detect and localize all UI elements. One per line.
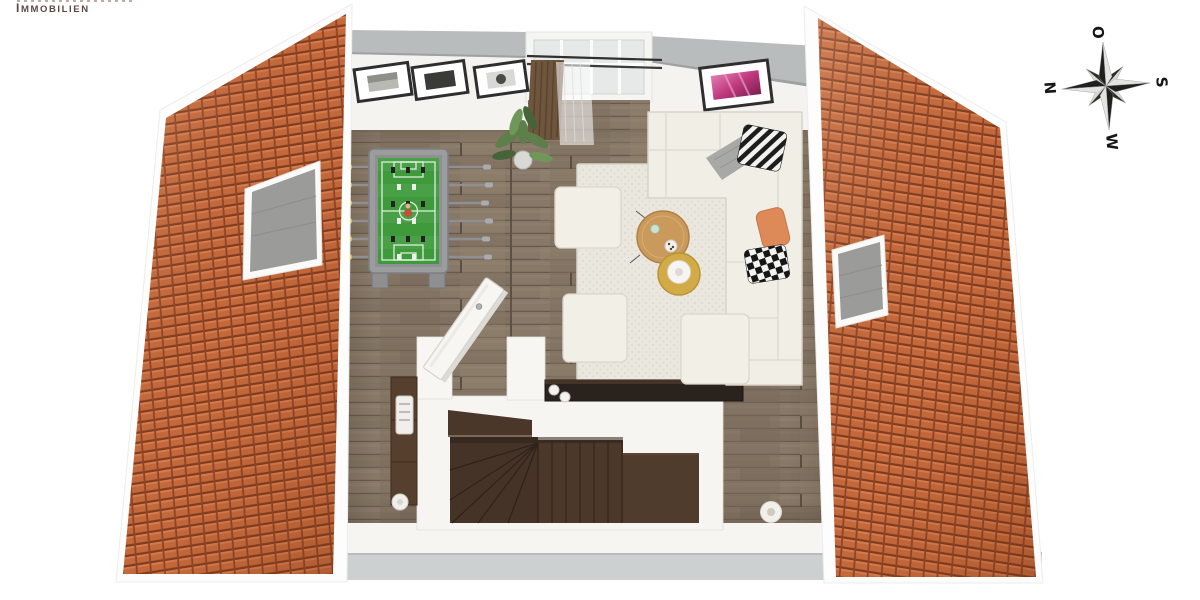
cropped-logo-line: [17, 0, 135, 2]
ottoman-3: [681, 314, 749, 384]
compass-label-west: W: [1102, 133, 1121, 151]
decor-vase: [396, 396, 413, 434]
left-roof: [116, 4, 352, 582]
compass-rose: N O S W: [1037, 21, 1175, 155]
picture-frame-3: [474, 61, 528, 98]
cup: [549, 385, 559, 395]
stair-shadow: [450, 437, 623, 443]
bw-pattern-pillow: [736, 124, 787, 172]
compass-star: [1059, 39, 1153, 133]
pink-picture-frame: [700, 60, 773, 110]
decor-plate-center: [397, 499, 403, 505]
brand-logo: IMMOBILIEN: [16, 0, 135, 15]
cup: [560, 392, 570, 402]
winder-steps: [450, 437, 538, 523]
picture-frame-1: [354, 62, 412, 101]
checkered-pillow: [744, 244, 791, 284]
right-roof: [804, 6, 1043, 583]
figure-on-table: [404, 209, 412, 217]
floor-candle: [761, 502, 782, 523]
scene: N O S W: [0, 0, 1200, 600]
skylight-window-right: [832, 235, 888, 328]
side-table: [658, 253, 700, 295]
stair-landing: [623, 453, 699, 523]
compass-label-north: N: [1040, 81, 1059, 95]
compass-label-south: S: [1152, 76, 1171, 88]
figure-head: [406, 204, 411, 209]
sideboard: [391, 377, 417, 510]
ottoman-1: [555, 187, 621, 248]
left-roof-shading: [123, 14, 346, 574]
cup-on-table: [651, 225, 660, 234]
ottoman-2: [563, 294, 627, 362]
door-frame-wall: [507, 337, 545, 400]
logo-text: IMMOBILIEN: [16, 3, 135, 15]
floorplan-3d-render: N O S W IMMOBILIEN: [0, 0, 1200, 600]
compass-label-east: O: [1089, 25, 1108, 39]
window-with-curtains: [526, 32, 662, 145]
picture-frame-2: [412, 61, 468, 100]
